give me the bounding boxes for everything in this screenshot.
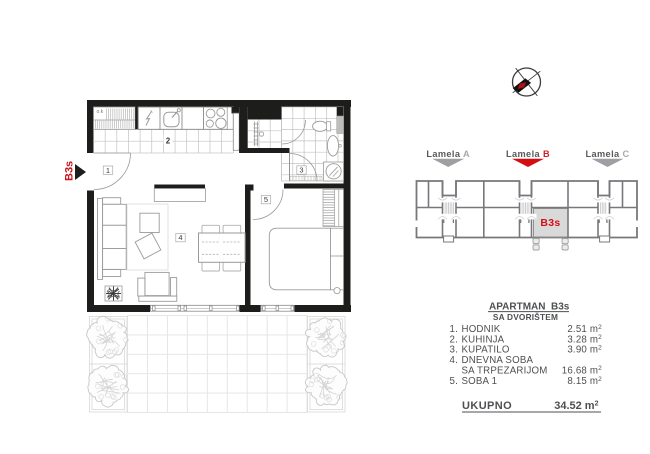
svg-text:2: 2 [166, 136, 171, 145]
svg-text:4.: 4. [450, 355, 458, 366]
svg-text:5: 5 [264, 195, 268, 204]
svg-text:34.52 m2: 34.52 m2 [554, 400, 598, 412]
svg-text:APARTMAN: APARTMAN [489, 302, 545, 313]
svg-text:B3s: B3s [64, 161, 76, 181]
svg-text:SA DVORIŠTEM: SA DVORIŠTEM [493, 311, 558, 322]
svg-text:Lamela A: Lamela A [426, 149, 470, 159]
svg-text:3.90 m2: 3.90 m2 [567, 344, 602, 355]
svg-text:Lamela C: Lamela C [585, 149, 629, 159]
svg-text:B3s: B3s [540, 217, 560, 229]
svg-text:5.: 5. [450, 376, 458, 387]
svg-text:UKUPNO: UKUPNO [462, 400, 512, 412]
svg-text:o.k: o.k [97, 109, 104, 115]
svg-text:4: 4 [178, 233, 182, 242]
svg-text:SA TRPEZARIJOM: SA TRPEZARIJOM [462, 365, 548, 376]
svg-text:8.15 m2: 8.15 m2 [567, 376, 602, 387]
svg-text:1: 1 [106, 166, 110, 175]
svg-text:DNEVNA SOBA: DNEVNA SOBA [462, 355, 534, 366]
svg-text:3: 3 [299, 166, 303, 175]
svg-text:SOBA 1: SOBA 1 [462, 376, 498, 387]
svg-text:Lamela B: Lamela B [506, 149, 550, 159]
svg-text:B3s: B3s [551, 302, 570, 313]
svg-text:16.68 m2: 16.68 m2 [562, 365, 602, 376]
